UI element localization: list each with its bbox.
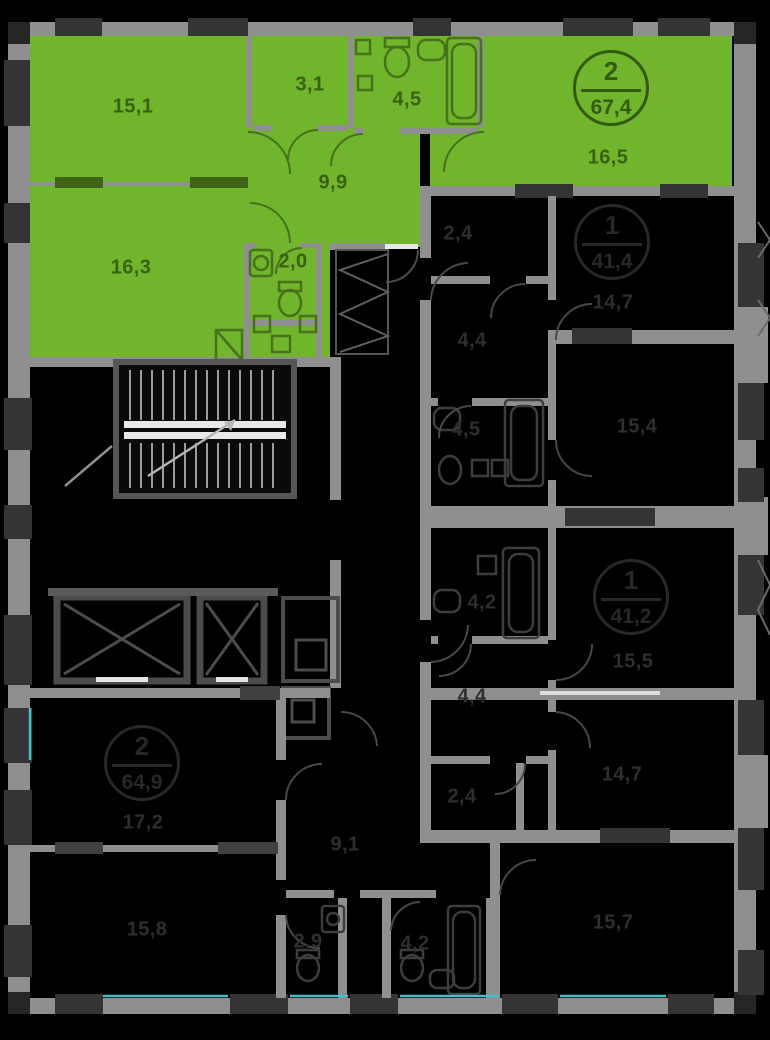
room-area-label: 14,7 [593, 292, 634, 315]
elevator-1 [57, 597, 187, 681]
shaft-hatch [336, 250, 388, 354]
room-area-label: 2,4 [447, 786, 476, 809]
room-area-label: 4,2 [467, 592, 496, 615]
badge-total-area: 67,4 [576, 92, 646, 124]
badge-rooms-count: 2 [581, 53, 641, 92]
elevator-2 [200, 597, 264, 681]
room-area-label: 3,1 [295, 74, 324, 97]
staircase [116, 362, 294, 496]
badge-rooms-count: 1 [601, 562, 661, 601]
room-area-label: 4,5 [451, 419, 480, 442]
apartment-badge: 1 41,2 [593, 559, 669, 635]
room-area-label: 9,1 [330, 834, 359, 857]
door-arcs [431, 625, 592, 794]
utility-rooms [283, 598, 338, 738]
room-area-label: 15,1 [113, 96, 154, 119]
room-area-label: 15,8 [127, 919, 168, 942]
room-area-label: 9,9 [318, 172, 347, 195]
room-area-label: 16,3 [111, 257, 152, 280]
room-area-label: 14,7 [602, 764, 643, 787]
room-area-label: 2,9 [293, 931, 322, 954]
badge-total-area: 41,2 [596, 601, 666, 633]
apartment-badge: 2 64,9 [104, 725, 180, 801]
badge-total-area: 64,9 [107, 767, 177, 799]
room-area-label: 2,0 [278, 251, 307, 274]
room-area-label: 15,5 [613, 651, 654, 674]
selected-apartment-badge[interactable]: 2 67,4 [573, 50, 649, 126]
floor-plan: 2 67,4 15,1 3,1 4,5 16,5 9,9 16,3 2,0 1 … [0, 0, 770, 1040]
badge-rooms-count: 2 [112, 728, 172, 767]
floor-plan-graphics [0, 0, 770, 1040]
room-area-label: 4,4 [457, 330, 486, 353]
room-area-label: 16,5 [588, 147, 629, 170]
room-area-label: 17,2 [123, 812, 164, 835]
room-area-label: 15,7 [593, 912, 634, 935]
room-area-label: 15,4 [617, 416, 658, 439]
room-area-label: 2,4 [443, 223, 472, 246]
room-area-label: 4,5 [392, 89, 421, 112]
room-area-label: 4,2 [400, 933, 429, 956]
badge-total-area: 41,4 [577, 246, 647, 278]
badge-rooms-count: 1 [582, 207, 642, 246]
apartment-badge: 1 41,4 [574, 204, 650, 280]
room-area-label: 4,4 [457, 686, 486, 709]
